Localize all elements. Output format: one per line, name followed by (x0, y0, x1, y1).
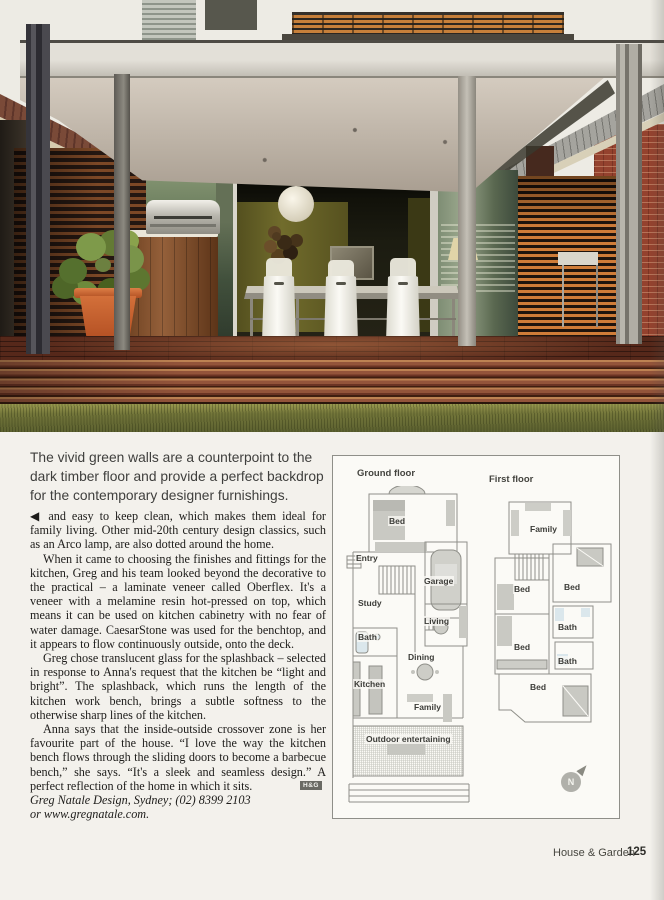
potted-plant-foliage (95, 258, 111, 272)
room-label: Living (423, 616, 450, 626)
room-label: Kitchen (353, 679, 386, 689)
room-label: Family (413, 702, 442, 712)
chair-back (386, 276, 420, 342)
room-label: Bed (513, 584, 531, 594)
bbq-slot (154, 216, 212, 219)
room-label: Bed (388, 516, 406, 526)
room-label: Bed (529, 682, 547, 692)
background-window (205, 0, 257, 30)
page-edge-shadow (650, 0, 664, 900)
bbq-handle (150, 224, 216, 227)
north-arrow-icon: N (561, 772, 581, 792)
room-label: Bed (513, 642, 531, 652)
table-flowers (272, 232, 281, 241)
chair-handle-slot (398, 282, 408, 285)
designer-credit: Greg Natale Design, Sydney; (02) 8399 21… (30, 793, 326, 807)
steel-post-inner-left (114, 74, 130, 350)
chair-handle-slot (336, 282, 346, 285)
article-body: ◀ and easy to keep clean, which makes th… (30, 509, 326, 821)
end-of-article-badge: H&G (300, 781, 322, 790)
room-label: Bath (357, 632, 378, 642)
lawn (0, 404, 664, 432)
room-label: Entry (355, 553, 379, 563)
blind-reflection (441, 224, 515, 296)
room-label: Bath (557, 656, 578, 666)
magazine-page: The vivid green walls are a counterpoint… (0, 0, 664, 900)
ground-floor-plan (345, 486, 475, 806)
footer-page-number: 125 (627, 846, 646, 858)
chair-back (324, 276, 358, 342)
chair-back (262, 276, 296, 342)
north-needle-icon (576, 763, 589, 777)
caption-line: dark timber floor and provide a perfect … (30, 467, 340, 486)
designer-website: or www.gregnatale.com. (30, 807, 326, 821)
room-label: Garage (423, 576, 454, 586)
footer-magazine-title: House & Garden (553, 847, 635, 859)
deck-steps (0, 360, 664, 405)
photo-caption: The vivid green walls are a counterpoint… (30, 448, 340, 505)
caption-line: for the contemporary designer furnishing… (30, 486, 340, 505)
article-paragraph: Greg chose translucent glass for the spl… (30, 651, 326, 722)
article-paragraph: ◀ and easy to keep clean, which makes th… (30, 509, 326, 552)
room-label: Dining (407, 652, 435, 662)
caption-line: The vivid green walls are a counterpoint… (30, 448, 340, 467)
room-label: Family (529, 524, 558, 534)
steel-post-inner-right (458, 76, 476, 346)
floorplan-panel: Ground floor First floor (332, 455, 620, 819)
outdoor-bench (558, 252, 598, 265)
ground-floor-title: Ground floor (357, 468, 415, 479)
first-floor-title: First floor (489, 474, 533, 485)
chair-handle-slot (274, 282, 284, 285)
steel-post-outer-right (616, 44, 642, 344)
room-label: Study (357, 598, 383, 608)
hero-photo (0, 0, 664, 432)
outdoor-bench-legs (562, 265, 598, 327)
article-paragraph: Anna says that the inside-outside crosso… (30, 722, 326, 793)
article-paragraph: When it came to choosing the finishes an… (30, 552, 326, 651)
room-label: Bed (563, 582, 581, 592)
room-label: Bath (557, 622, 578, 632)
pendant-lamp (278, 186, 314, 222)
steel-post-outer-left (26, 24, 50, 354)
room-label: Outdoor entertaining (365, 734, 452, 744)
steel-beam (20, 40, 664, 78)
door-frame (430, 168, 438, 356)
